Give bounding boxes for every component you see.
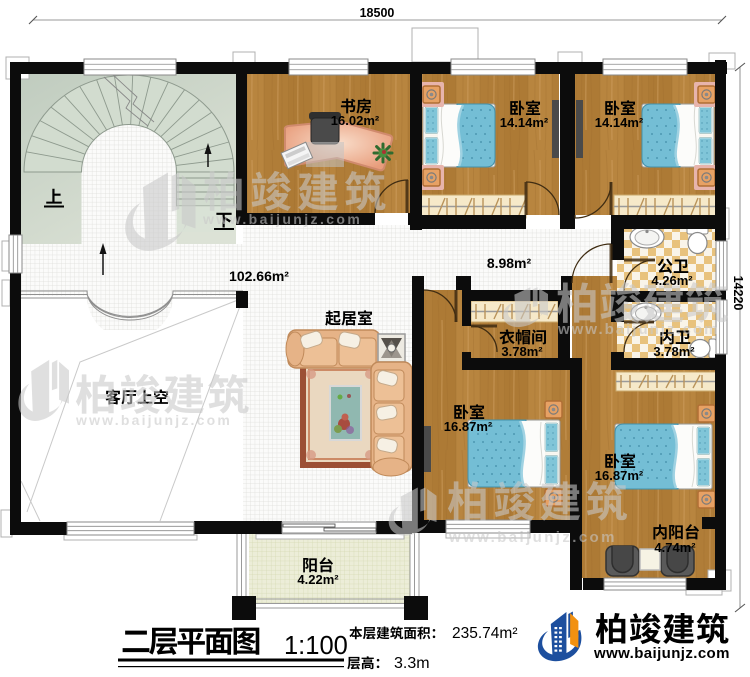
- svg-text:14220: 14220: [731, 276, 745, 311]
- svg-text:4.22m²: 4.22m²: [297, 572, 339, 587]
- svg-text:16.02m²: 16.02m²: [331, 113, 380, 128]
- svg-text:www.baijunjz.com: www.baijunjz.com: [75, 412, 232, 428]
- svg-text:3.78m²: 3.78m²: [501, 344, 543, 359]
- svg-text:14.14m²: 14.14m²: [595, 115, 644, 130]
- svg-text:16.87m²: 16.87m²: [595, 468, 644, 483]
- svg-text:235.74m²: 235.74m²: [452, 625, 517, 642]
- svg-text:1:100: 1:100: [284, 632, 348, 660]
- svg-text:www.baijunjz.com: www.baijunjz.com: [593, 645, 730, 662]
- svg-text:www.baijunjz.com: www.baijunjz.com: [557, 321, 719, 338]
- svg-text:18500: 18500: [360, 6, 395, 20]
- svg-text:16.87m²: 16.87m²: [444, 419, 493, 434]
- svg-text:www.baijunjz.com: www.baijunjz.com: [202, 211, 362, 227]
- svg-text:3.3m: 3.3m: [394, 655, 430, 672]
- svg-text:8.98m²: 8.98m²: [487, 255, 532, 271]
- svg-text:4.74m²: 4.74m²: [654, 540, 696, 555]
- svg-text:www.baijunjz.com: www.baijunjz.com: [448, 529, 617, 546]
- svg-text:102.66m²: 102.66m²: [229, 268, 289, 284]
- svg-text:14.14m²: 14.14m²: [500, 115, 549, 130]
- svg-text:3.78m²: 3.78m²: [653, 344, 695, 359]
